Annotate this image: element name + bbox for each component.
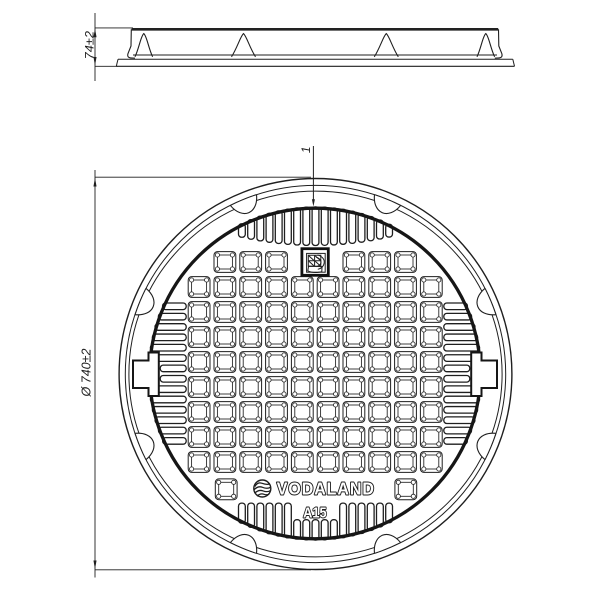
svg-text:A15: A15 — [303, 506, 327, 522]
svg-text:Ø 740±2: Ø 740±2 — [78, 348, 93, 398]
svg-text:1: 1 — [299, 146, 313, 153]
svg-text:74±2: 74±2 — [82, 31, 96, 59]
svg-text:VODALAND: VODALAND — [277, 479, 375, 499]
